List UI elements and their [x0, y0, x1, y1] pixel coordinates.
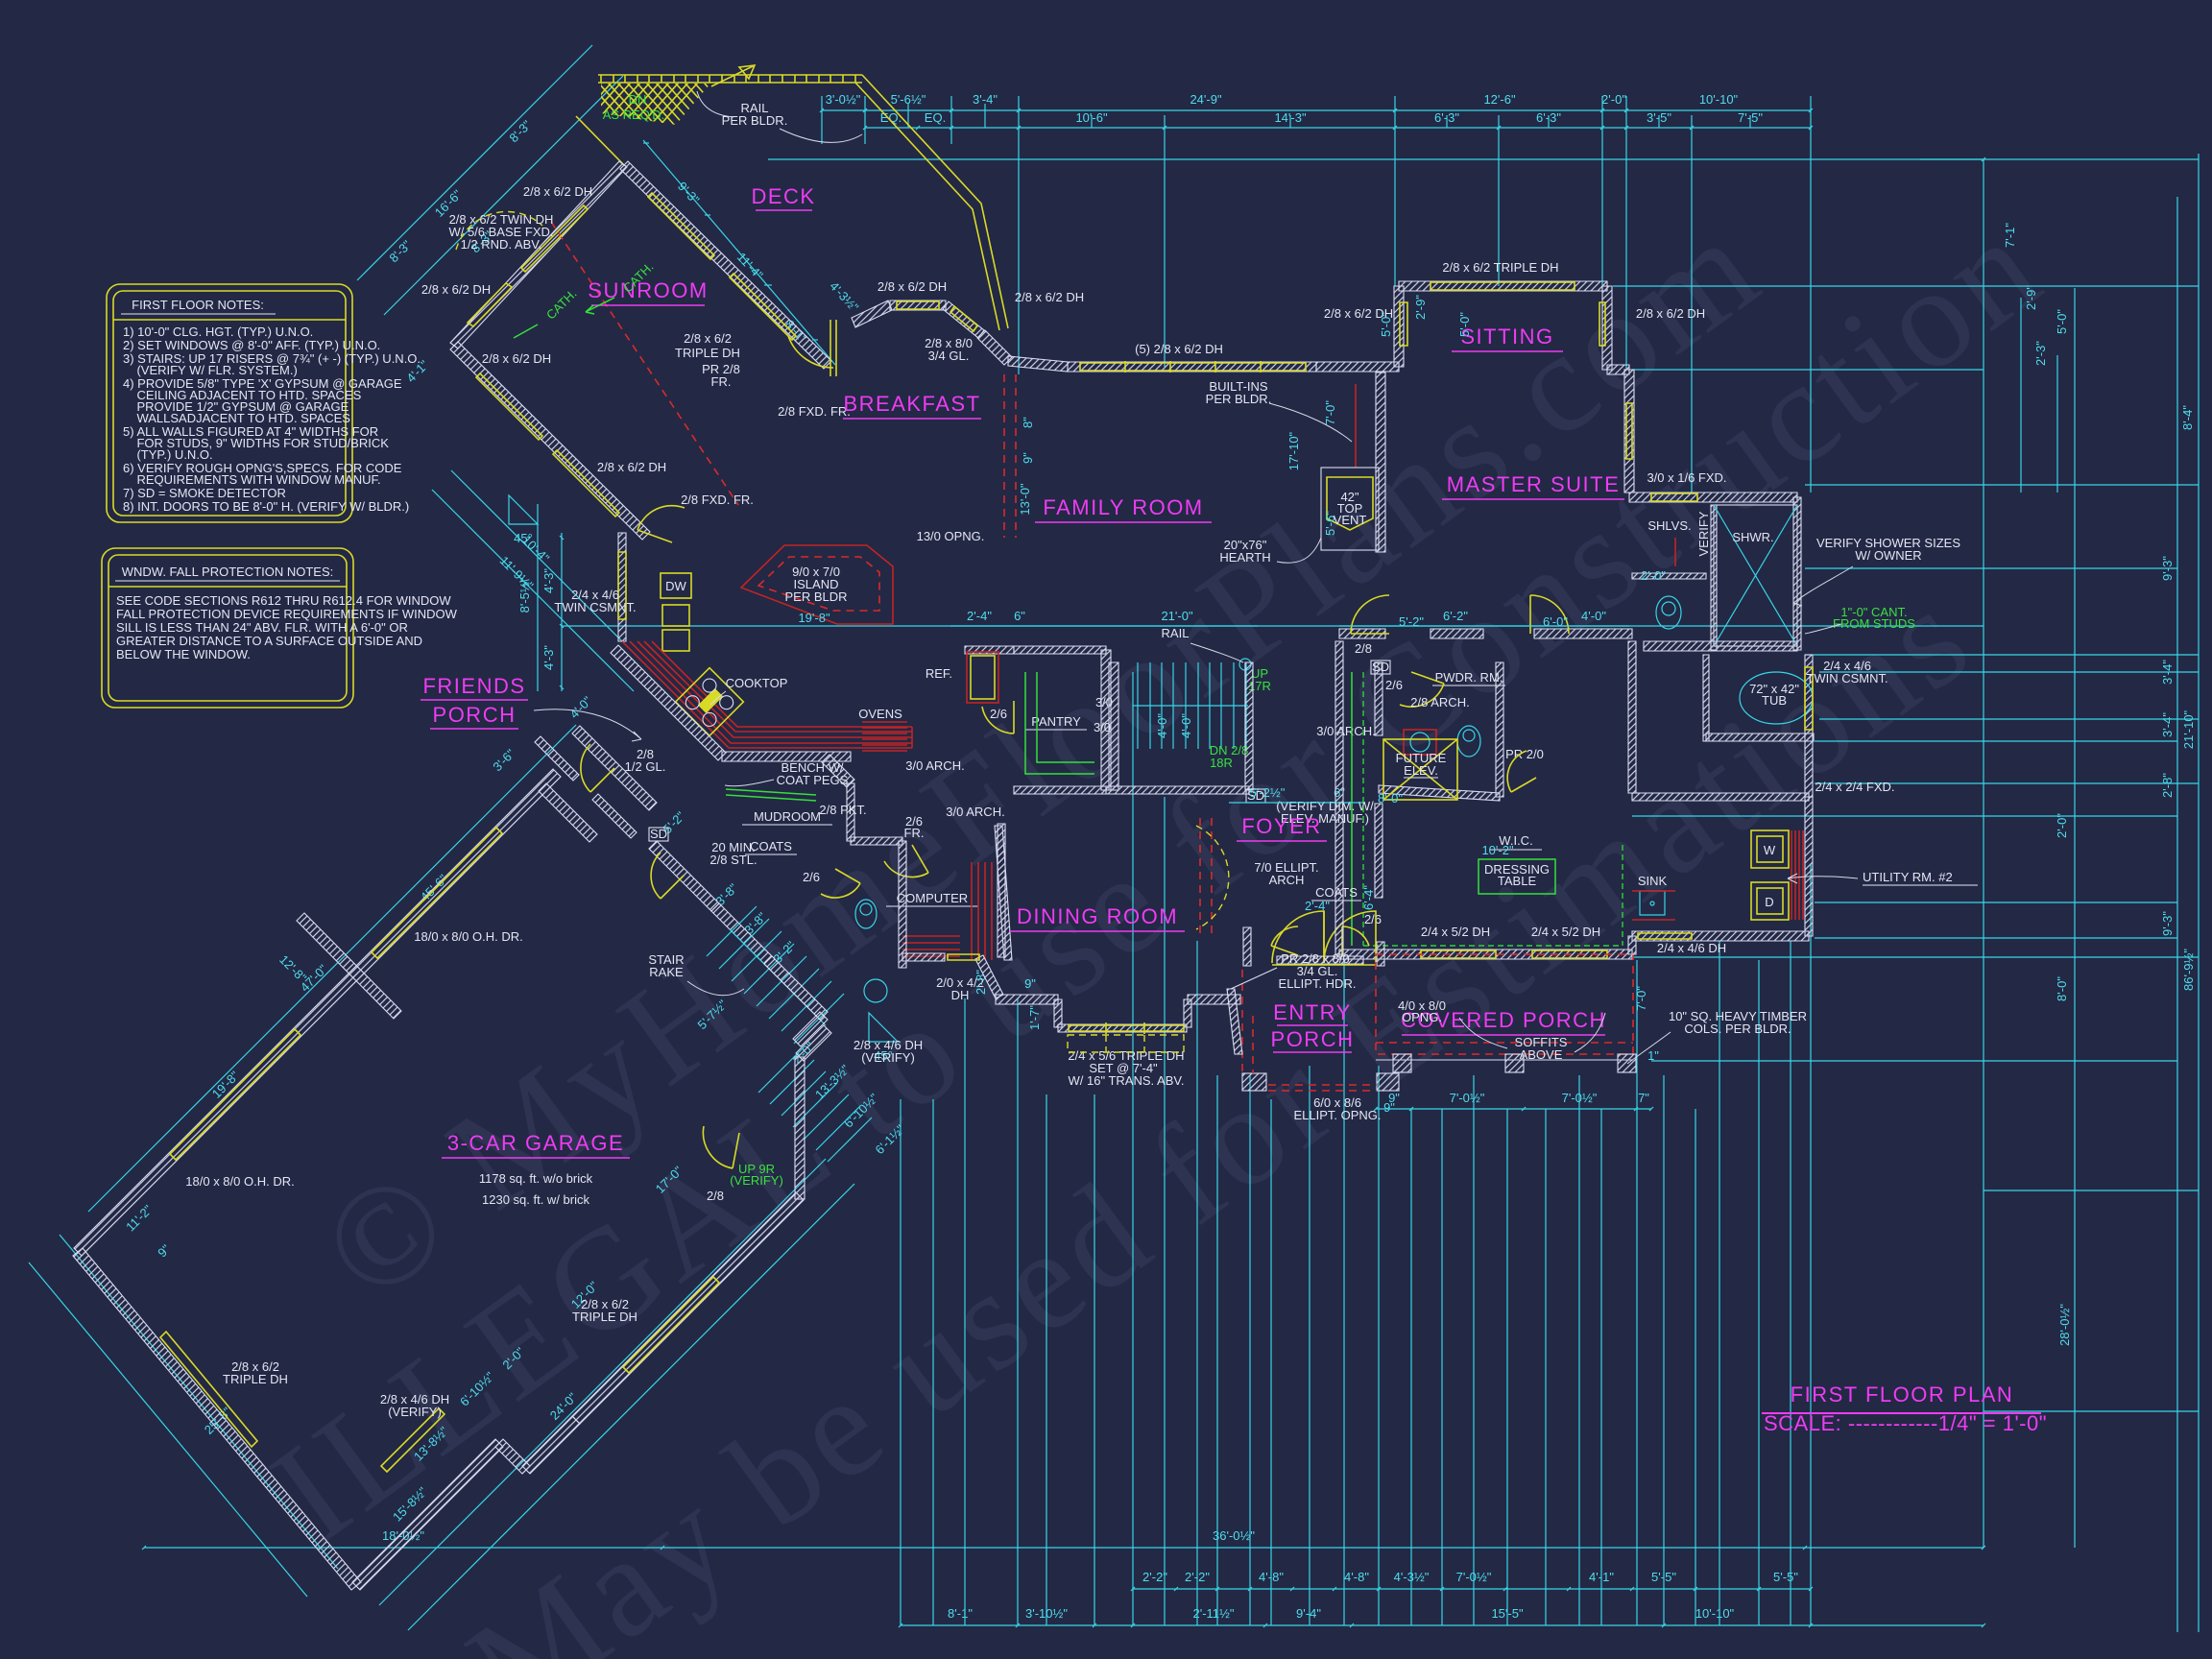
svg-text:7'-0½": 7'-0½" — [1562, 1091, 1598, 1105]
svg-text:TUB: TUB — [1762, 693, 1787, 708]
svg-text:FROM STUDS: FROM STUDS — [1833, 616, 1915, 631]
svg-text:MASTER SUITE: MASTER SUITE — [1447, 472, 1621, 496]
svg-text:21'-0": 21'-0" — [1161, 609, 1193, 623]
svg-text:7'-0": 7'-0" — [1323, 400, 1337, 425]
svg-text:5'-2½": 5'-2½" — [1250, 785, 1286, 800]
svg-text:PER BLDR: PER BLDR — [784, 589, 847, 604]
svg-text:FALL PROTECTION DEVICE REQUIRE: FALL PROTECTION DEVICE REQUIREMENTS IF W… — [116, 607, 458, 621]
svg-text:AS REQ'D.: AS REQ'D. — [603, 108, 665, 122]
svg-text:9'-3": 9'-3" — [2160, 911, 2175, 936]
svg-text:18R: 18R — [1210, 756, 1233, 770]
svg-text:SINK: SINK — [1638, 874, 1668, 888]
svg-text:ELEV.: ELEV. — [1404, 763, 1438, 778]
svg-text:9": 9" — [1388, 1091, 1400, 1105]
svg-text:2'-8": 2'-8" — [2160, 773, 2175, 798]
svg-text:7'-0½": 7'-0½" — [1450, 1091, 1485, 1105]
svg-text:2/8 PKT.: 2/8 PKT. — [819, 803, 866, 817]
svg-text:6'-2": 6'-2" — [1443, 609, 1468, 623]
svg-text:FOYER: FOYER — [1241, 814, 1321, 838]
svg-text:2/8 FXD. FR.: 2/8 FXD. FR. — [778, 404, 851, 419]
svg-text:(VERIFY): (VERIFY) — [861, 1050, 915, 1065]
svg-text:3'-0½": 3'-0½" — [826, 92, 861, 107]
svg-text:86'-9½": 86'-9½" — [2181, 949, 2196, 991]
svg-text:SUNROOM: SUNROOM — [588, 278, 708, 302]
svg-text:2'-0": 2'-0" — [2055, 813, 2069, 838]
svg-text:(5) 2/8 x 6/2 DH: (5) 2/8 x 6/2 DH — [1135, 342, 1223, 356]
svg-text:1'-7": 1'-7" — [1027, 1005, 1042, 1030]
svg-text:2/8 STL.: 2/8 STL. — [709, 853, 757, 867]
svg-text:2/8 x 6/2 DH: 2/8 x 6/2 DH — [597, 460, 666, 474]
svg-text:19'-8": 19'-8" — [798, 611, 830, 625]
svg-text:2/8 x 6/2: 2/8 x 6/2 — [684, 331, 732, 346]
svg-text:COATS: COATS — [750, 839, 792, 854]
svg-text:2/6: 2/6 — [1364, 912, 1382, 926]
svg-text:WNDW. FALL PROTECTION NOTES:: WNDW. FALL PROTECTION NOTES: — [122, 565, 334, 579]
svg-text:BELOW THE WINDOW.: BELOW THE WINDOW. — [116, 647, 251, 661]
svg-text:ELLIPT. OPNG.: ELLIPT. OPNG. — [1293, 1108, 1381, 1122]
svg-text:SILL IS LESS THAN 24" ABV. FLR: SILL IS LESS THAN 24" ABV. FLR. WITH A 6… — [116, 620, 408, 635]
svg-text:10'-2": 10'-2" — [1481, 843, 1514, 857]
svg-text:SITTING: SITTING — [1460, 325, 1553, 349]
svg-text:3/0 ARCH.: 3/0 ARCH. — [905, 758, 964, 773]
svg-text:2/4 x 5/2 DH: 2/4 x 5/2 DH — [1531, 925, 1600, 939]
svg-text:2'-11½": 2'-11½" — [1193, 1606, 1235, 1621]
svg-text:VENT: VENT — [1334, 513, 1367, 527]
svg-text:REF.: REF. — [926, 666, 952, 681]
svg-text:2/4 x 4/6 DH: 2/4 x 4/6 DH — [1657, 941, 1726, 955]
svg-text:2'-9": 2'-9" — [2024, 285, 2038, 310]
svg-text:PORCH: PORCH — [1271, 1027, 1355, 1051]
svg-text:TRIPLE DH: TRIPLE DH — [223, 1372, 288, 1386]
svg-text:17'-10": 17'-10" — [1286, 431, 1301, 470]
svg-text:2) SET WINDOWS @ 8'-0" AFF. (T: 2) SET WINDOWS @ 8'-0" AFF. (TYP.) U.N.O… — [123, 338, 380, 352]
svg-text:PER BLDR.: PER BLDR. — [1206, 392, 1272, 406]
svg-text:FR.: FR. — [711, 374, 732, 389]
svg-text:5'-2": 5'-2" — [1399, 614, 1424, 629]
svg-text:2'-0": 2'-0" — [1641, 568, 1666, 583]
svg-text:TABLE: TABLE — [1498, 874, 1537, 888]
svg-text:W/ 16" TRANS. ABV.: W/ 16" TRANS. ABV. — [1069, 1073, 1185, 1088]
svg-text:3/0 ARCH.: 3/0 ARCH. — [946, 805, 1004, 819]
svg-text:RAKE: RAKE — [649, 965, 684, 979]
svg-text:2'-2": 2'-2" — [1142, 1570, 1167, 1584]
svg-text:PANTRY: PANTRY — [1031, 714, 1081, 729]
svg-text:18/0 x 8/0 O.H. DR.: 18/0 x 8/0 O.H. DR. — [414, 929, 522, 944]
svg-text:5'-5": 5'-5" — [1773, 1570, 1798, 1584]
svg-text:SHWR.: SHWR. — [1732, 530, 1773, 544]
svg-text:TWIN CSMNT.: TWIN CSMNT. — [554, 600, 636, 614]
svg-text:4'-3": 4'-3" — [541, 645, 556, 670]
svg-text:4'-3": 4'-3" — [541, 568, 556, 593]
svg-text:1230 sq. ft. w/ brick: 1230 sq. ft. w/ brick — [482, 1192, 589, 1207]
svg-text:21'-10": 21'-10" — [2181, 709, 2196, 749]
svg-text:COMPUTER: COMPUTER — [897, 891, 968, 905]
svg-text:REQUIREMENTS WITH WINDOW MANUF: REQUIREMENTS WITH WINDOW MANUF. — [123, 472, 381, 487]
svg-text:9": 9" — [1024, 976, 1036, 991]
svg-text:12'-6": 12'-6" — [1483, 92, 1516, 107]
svg-text:45°: 45° — [514, 531, 533, 545]
svg-text:(VERIFY): (VERIFY) — [730, 1173, 783, 1188]
svg-text:SD: SD — [650, 827, 667, 841]
svg-text:GREATER DISTANCE TO A SURFACE: GREATER DISTANCE TO A SURFACE OUTSIDE AN… — [116, 634, 422, 648]
svg-text:WALLSADJACENT TO HTD. SPACES: WALLSADJACENT TO HTD. SPACES — [123, 411, 350, 425]
svg-text:SEE CODE SECTIONS R612 THRU R6: SEE CODE SECTIONS R612 THRU R612.4 FOR W… — [116, 593, 451, 608]
svg-text:2/8: 2/8 — [1355, 641, 1372, 656]
svg-text:7": 7" — [1638, 1091, 1649, 1105]
svg-text:3/0: 3/0 — [1094, 720, 1111, 734]
svg-text:6'-4": 6'-4" — [1361, 885, 1376, 910]
svg-text:7'-1": 7'-1" — [2003, 223, 2017, 248]
svg-text:9'-4": 9'-4" — [1296, 1606, 1321, 1621]
svg-text:2/8 x 6/2 DH: 2/8 x 6/2 DH — [482, 351, 551, 366]
svg-text:3-CAR GARAGE: 3-CAR GARAGE — [447, 1131, 624, 1155]
svg-text:4'-0": 4'-0" — [1179, 713, 1193, 738]
svg-text:2'-4": 2'-4" — [967, 609, 992, 623]
svg-text:1/2 GL.: 1/2 GL. — [625, 759, 666, 774]
svg-text:9": 9" — [1021, 452, 1035, 464]
svg-text:2/6: 2/6 — [803, 870, 820, 884]
svg-text:13/0 OPNG.: 13/0 OPNG. — [917, 529, 985, 543]
svg-text:36'-0½": 36'-0½" — [1213, 1528, 1255, 1543]
svg-text:W: W — [1764, 843, 1776, 857]
svg-text:6'-0": 6'-0" — [1543, 614, 1568, 629]
svg-text:8'-0": 8'-0" — [2055, 976, 2069, 1001]
svg-text:(VERIFY): (VERIFY) — [388, 1405, 442, 1419]
svg-text:ENTRY: ENTRY — [1273, 1000, 1352, 1024]
svg-text:OPNG.: OPNG. — [1402, 1010, 1442, 1024]
svg-text:2'-0": 2'-0" — [1601, 92, 1626, 107]
svg-text:DECK: DECK — [751, 184, 815, 208]
svg-text:18/0 x 8/0 O.H. DR.: 18/0 x 8/0 O.H. DR. — [185, 1174, 294, 1189]
svg-text:5'-0": 5'-0" — [2055, 309, 2069, 334]
svg-text:8'-5½": 8'-5½" — [517, 577, 532, 613]
svg-text:TRIPLE DH: TRIPLE DH — [572, 1310, 637, 1324]
svg-text:3/0 x 1/6 FXD.: 3/0 x 1/6 FXD. — [1647, 470, 1726, 485]
svg-text:ARCH: ARCH — [1269, 873, 1305, 887]
svg-text:2/8 x 6/2 DH: 2/8 x 6/2 DH — [421, 282, 491, 297]
svg-text:FIRST FLOOR NOTES:: FIRST FLOOR NOTES: — [132, 298, 264, 312]
svg-text:2/6: 2/6 — [990, 707, 1007, 721]
svg-text:8'-4": 8'-4" — [2180, 405, 2195, 430]
svg-text:2/8 ARCH.: 2/8 ARCH. — [1410, 695, 1469, 709]
svg-text:2/8 x 6/2 TRIPLE DH: 2/8 x 6/2 TRIPLE DH — [1442, 260, 1558, 275]
svg-text:10'-10": 10'-10" — [1699, 92, 1739, 107]
svg-text:7'-0": 7'-0" — [1634, 986, 1648, 1011]
svg-text:D: D — [1765, 895, 1773, 909]
svg-text:MUDROOM: MUDROOM — [754, 809, 821, 824]
svg-text:2'-3": 2'-3" — [2033, 341, 2048, 366]
svg-text:4'-0": 4'-0" — [1581, 609, 1606, 623]
svg-text:8": 8" — [1021, 417, 1035, 428]
svg-text:FIRST FLOOR PLAN: FIRST FLOOR PLAN — [1791, 1382, 2014, 1407]
svg-text:EQ.: EQ. — [925, 110, 946, 125]
svg-text:8'-1": 8'-1" — [948, 1606, 973, 1621]
svg-text:5'-6": 5'-6" — [1323, 511, 1337, 536]
svg-text:DINING ROOM: DINING ROOM — [1017, 904, 1178, 928]
svg-text:1) 10'-0" CLG. HGT. (TYP.) U.: 1) 10'-0" CLG. HGT. (TYP.) U.N.O. — [123, 325, 313, 339]
svg-text:4'-8": 4'-8" — [1344, 1570, 1369, 1584]
svg-text:TRIPLE DH: TRIPLE DH — [675, 346, 740, 360]
svg-text:1": 1" — [1647, 1048, 1659, 1063]
svg-text:2/8: 2/8 — [707, 1189, 724, 1203]
svg-text:TWIN CSMNT.: TWIN CSMNT. — [1806, 671, 1887, 685]
svg-text:3'-4": 3'-4" — [2160, 712, 2175, 737]
svg-text:2/6: 2/6 — [1385, 678, 1403, 692]
svg-text:COLS. PER BLDR.: COLS. PER BLDR. — [1684, 1022, 1791, 1036]
svg-text:2/8 x 6/2 DH: 2/8 x 6/2 DH — [523, 184, 592, 199]
svg-text:ELLIPT. HDR.: ELLIPT. HDR. — [1279, 976, 1357, 991]
svg-text:2'-9": 2'-9" — [1413, 295, 1428, 320]
svg-text:(VERIFY W/ FLR. SYSTEM.): (VERIFY W/ FLR. SYSTEM.) — [123, 363, 298, 377]
svg-text:6": 6" — [1014, 609, 1025, 623]
svg-text:BREAKFAST: BREAKFAST — [843, 392, 980, 416]
svg-text:1/2 RND. ABV.: 1/2 RND. ABV. — [461, 237, 542, 252]
svg-text:HEARTH: HEARTH — [1219, 550, 1270, 565]
svg-text:COOKTOP: COOKTOP — [726, 676, 788, 690]
svg-text:FR.: FR. — [904, 826, 925, 840]
svg-text:PORCH: PORCH — [433, 703, 517, 727]
svg-text:SHLVS.: SHLVS. — [1647, 518, 1691, 533]
svg-text:13'-0": 13'-0" — [1018, 483, 1032, 516]
svg-text:4'-0": 4'-0" — [1155, 713, 1169, 738]
svg-text:3/0 ARCH.: 3/0 ARCH. — [1316, 724, 1375, 738]
svg-text:DH: DH — [951, 988, 970, 1002]
svg-text:(TYP.) U.N.O.: (TYP.) U.N.O. — [123, 447, 213, 462]
svg-text:2/8 FXD. FR.: 2/8 FXD. FR. — [681, 493, 754, 507]
svg-text:VERIFY: VERIFY — [1696, 511, 1711, 556]
svg-text:PR 2/0: PR 2/0 — [1505, 747, 1544, 761]
svg-text:FRIENDS: FRIENDS — [422, 674, 525, 698]
svg-text:5'-0": 5'-0" — [1457, 312, 1472, 337]
svg-text:2/8 x 6/2 DH: 2/8 x 6/2 DH — [878, 279, 947, 294]
svg-text:7) SD = SMOKE DETECTOR: 7) SD = SMOKE DETECTOR — [123, 486, 286, 500]
svg-text:DN: DN — [629, 92, 647, 107]
svg-text:2/4 x 2/4 FXD.: 2/4 x 2/4 FXD. — [1815, 780, 1894, 794]
svg-text:OVENS: OVENS — [858, 707, 902, 721]
svg-text:8) INT. DOORS TO BE 8'-0" H. (: 8) INT. DOORS TO BE 8'-0" H. (VERIFY W/ … — [123, 499, 409, 514]
svg-text:24'-9": 24'-9" — [1190, 92, 1222, 107]
svg-text:PER BLDR.: PER BLDR. — [722, 113, 788, 128]
svg-text:2/8 x 6/2 DH: 2/8 x 6/2 DH — [1015, 290, 1084, 304]
svg-text:FAMILY ROOM: FAMILY ROOM — [1043, 495, 1203, 519]
svg-text:SCALE: ------------1/4" = 1'-0: SCALE: ------------1/4" = 1'-0" — [1764, 1411, 2047, 1435]
svg-text:10'-10": 10'-10" — [1695, 1606, 1735, 1621]
svg-text:2/8 x 6/2 DH: 2/8 x 6/2 DH — [1636, 306, 1705, 321]
svg-text:28'-0½": 28'-0½" — [2057, 1304, 2072, 1346]
svg-text:1178 sq. ft. w/o brick: 1178 sq. ft. w/o brick — [479, 1171, 593, 1186]
svg-text:DW: DW — [665, 579, 686, 593]
svg-text:W/ OWNER: W/ OWNER — [1855, 548, 1921, 563]
svg-text:5'-0": 5'-0" — [1379, 312, 1393, 337]
svg-text:PWDR. RM.: PWDR. RM. — [1435, 670, 1503, 685]
svg-text:3/4 GL.: 3/4 GL. — [928, 349, 970, 363]
svg-text:UTILITY RM. #2: UTILITY RM. #2 — [1863, 870, 1953, 884]
svg-text:2/4 x 5/2 DH: 2/4 x 5/2 DH — [1421, 925, 1490, 939]
svg-text:RAIL: RAIL — [1162, 626, 1190, 640]
